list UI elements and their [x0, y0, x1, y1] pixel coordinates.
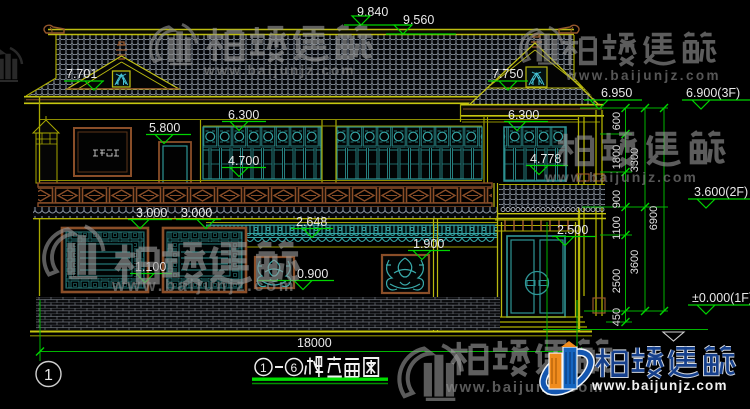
- svg-text:4.778: 4.778: [530, 152, 561, 166]
- svg-text:www.baijunjz.com: www.baijunjz.com: [544, 169, 698, 185]
- svg-text:2500: 2500: [611, 269, 623, 293]
- svg-text:0.900: 0.900: [297, 267, 328, 281]
- svg-text:1100: 1100: [611, 216, 623, 240]
- svg-text:6900: 6900: [648, 206, 660, 230]
- svg-text:3.600(2F): 3.600(2F): [694, 185, 748, 199]
- svg-text:900: 900: [611, 190, 623, 208]
- svg-text:6.300: 6.300: [228, 108, 259, 122]
- svg-text:www.baijunjz.com: www.baijunjz.com: [203, 63, 356, 78]
- svg-text:www.baijunjz.com: www.baijunjz.com: [565, 68, 721, 83]
- svg-text:7.701: 7.701: [66, 67, 97, 81]
- svg-text:2.500: 2.500: [557, 223, 588, 237]
- svg-text:6.950: 6.950: [601, 86, 632, 100]
- svg-text:3.000: 3.000: [136, 206, 167, 220]
- svg-text:600: 600: [611, 112, 623, 130]
- svg-text:1.900: 1.900: [413, 237, 444, 251]
- svg-text:6: 6: [291, 361, 298, 375]
- svg-text:6.300: 6.300: [508, 108, 539, 122]
- svg-text:3600: 3600: [629, 250, 641, 274]
- svg-text:www.baijunjz.com: www.baijunjz.com: [591, 378, 728, 393]
- svg-text:±0.000(1F): ±0.000(1F): [692, 291, 750, 305]
- svg-text:www.baijunjz.com: www.baijunjz.com: [111, 277, 296, 295]
- svg-text:5.800: 5.800: [149, 121, 180, 135]
- svg-text:3.000: 3.000: [181, 206, 212, 220]
- svg-text:7.750: 7.750: [492, 67, 523, 81]
- svg-text:1: 1: [44, 367, 53, 384]
- svg-text:2.648: 2.648: [296, 215, 327, 229]
- svg-text:9.840: 9.840: [357, 5, 388, 19]
- svg-text:1: 1: [260, 361, 267, 375]
- svg-text:4.700: 4.700: [228, 154, 259, 168]
- svg-text:6.900(3F): 6.900(3F): [686, 86, 740, 100]
- svg-text:18000: 18000: [297, 336, 332, 350]
- svg-text:450: 450: [611, 308, 623, 326]
